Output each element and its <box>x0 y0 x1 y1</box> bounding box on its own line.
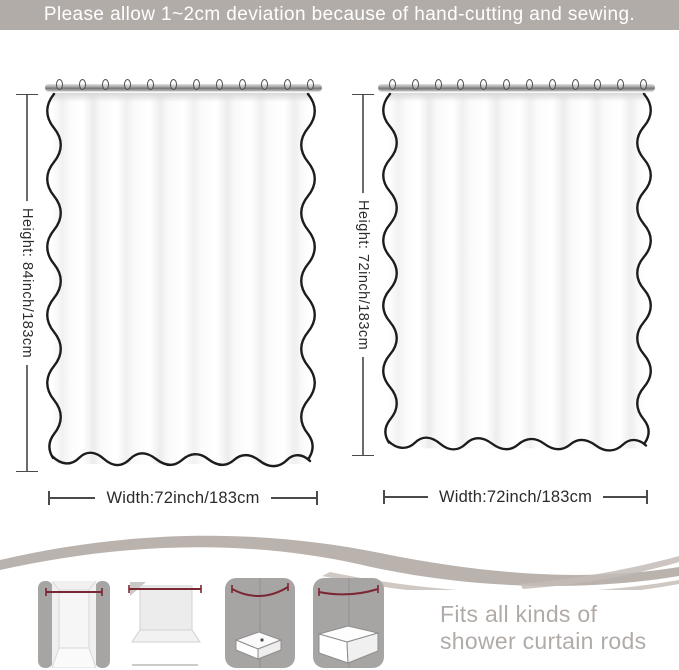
curtain-hook <box>193 79 200 90</box>
curtain-hooks-left <box>56 79 314 92</box>
left-curtain-height-dimension: Height: 84inch/183cm <box>16 94 38 472</box>
curtain-hook <box>124 79 131 90</box>
curtain-hook <box>503 79 510 90</box>
footer-caption-line1: Fits all kinds of <box>440 601 646 628</box>
dimension-cap-bottom <box>16 471 38 472</box>
curtain-right <box>376 92 658 458</box>
curtain-hook <box>170 79 177 90</box>
left-width-label: Width:72inch/183cm <box>106 489 259 508</box>
dimension-tick <box>646 490 648 504</box>
footer-caption: Fits all kinds of shower curtain rods <box>440 601 646 655</box>
dimension-line <box>26 365 28 471</box>
dimension-cap-bottom <box>352 455 374 456</box>
curved-rod-bathtub-icon <box>312 578 385 668</box>
curtain-hook <box>594 79 601 90</box>
curtain-hook <box>412 79 419 90</box>
dimension-line <box>603 496 646 498</box>
right-curtain-height-dimension: Height: 72inch/183cm <box>352 94 374 456</box>
curtain-hook <box>147 79 154 90</box>
curtain-hook <box>56 79 63 90</box>
left-height-label: Height: 84inch/183cm <box>19 201 35 365</box>
curtain-hooks-right <box>389 79 647 92</box>
curtain-hook <box>457 79 464 90</box>
dimension-line <box>271 497 317 499</box>
curtain-hook <box>435 79 442 90</box>
dimension-line <box>26 95 28 201</box>
curtain-hook <box>102 79 109 90</box>
curtain-hook <box>526 79 533 90</box>
dimension-tick <box>316 491 318 505</box>
right-width-label: Width:72inch/183cm <box>439 488 592 507</box>
curtain-hook <box>261 79 268 90</box>
right-curtain-width-dimension: Width:72inch/183cm <box>383 489 648 505</box>
left-curtain-width-dimension: Width:72inch/183cm <box>48 490 318 506</box>
curtain-hook <box>640 79 647 90</box>
curtain-hook <box>307 79 314 90</box>
curtain-hook <box>284 79 291 90</box>
deviation-notice-banner: Please allow 1~2cm deviation because of … <box>0 0 679 30</box>
curtain-left <box>40 92 322 474</box>
curtain-hook <box>572 79 579 90</box>
curved-rod-corner-shower-icon <box>224 578 296 668</box>
dimension-line <box>362 357 364 455</box>
straight-rod-alcove-icon <box>38 578 110 668</box>
curtain-hook <box>389 79 396 90</box>
dimension-line <box>362 95 364 193</box>
curtain-hook <box>549 79 556 90</box>
curtain-hook <box>239 79 246 90</box>
dimension-line <box>50 497 96 499</box>
curtain-hook <box>617 79 624 90</box>
dimension-line <box>385 496 428 498</box>
curtain-hook <box>216 79 223 90</box>
curtain-hook <box>79 79 86 90</box>
footer-caption-line2: shower curtain rods <box>440 628 646 655</box>
deviation-notice-text: Please allow 1~2cm deviation because of … <box>44 4 635 26</box>
right-height-label: Height: 72inch/183cm <box>355 193 371 357</box>
straight-rod-panel-icon <box>126 580 204 668</box>
product-dimension-graphic: Please allow 1~2cm deviation because of … <box>0 0 679 670</box>
curtain-hook <box>480 79 487 90</box>
